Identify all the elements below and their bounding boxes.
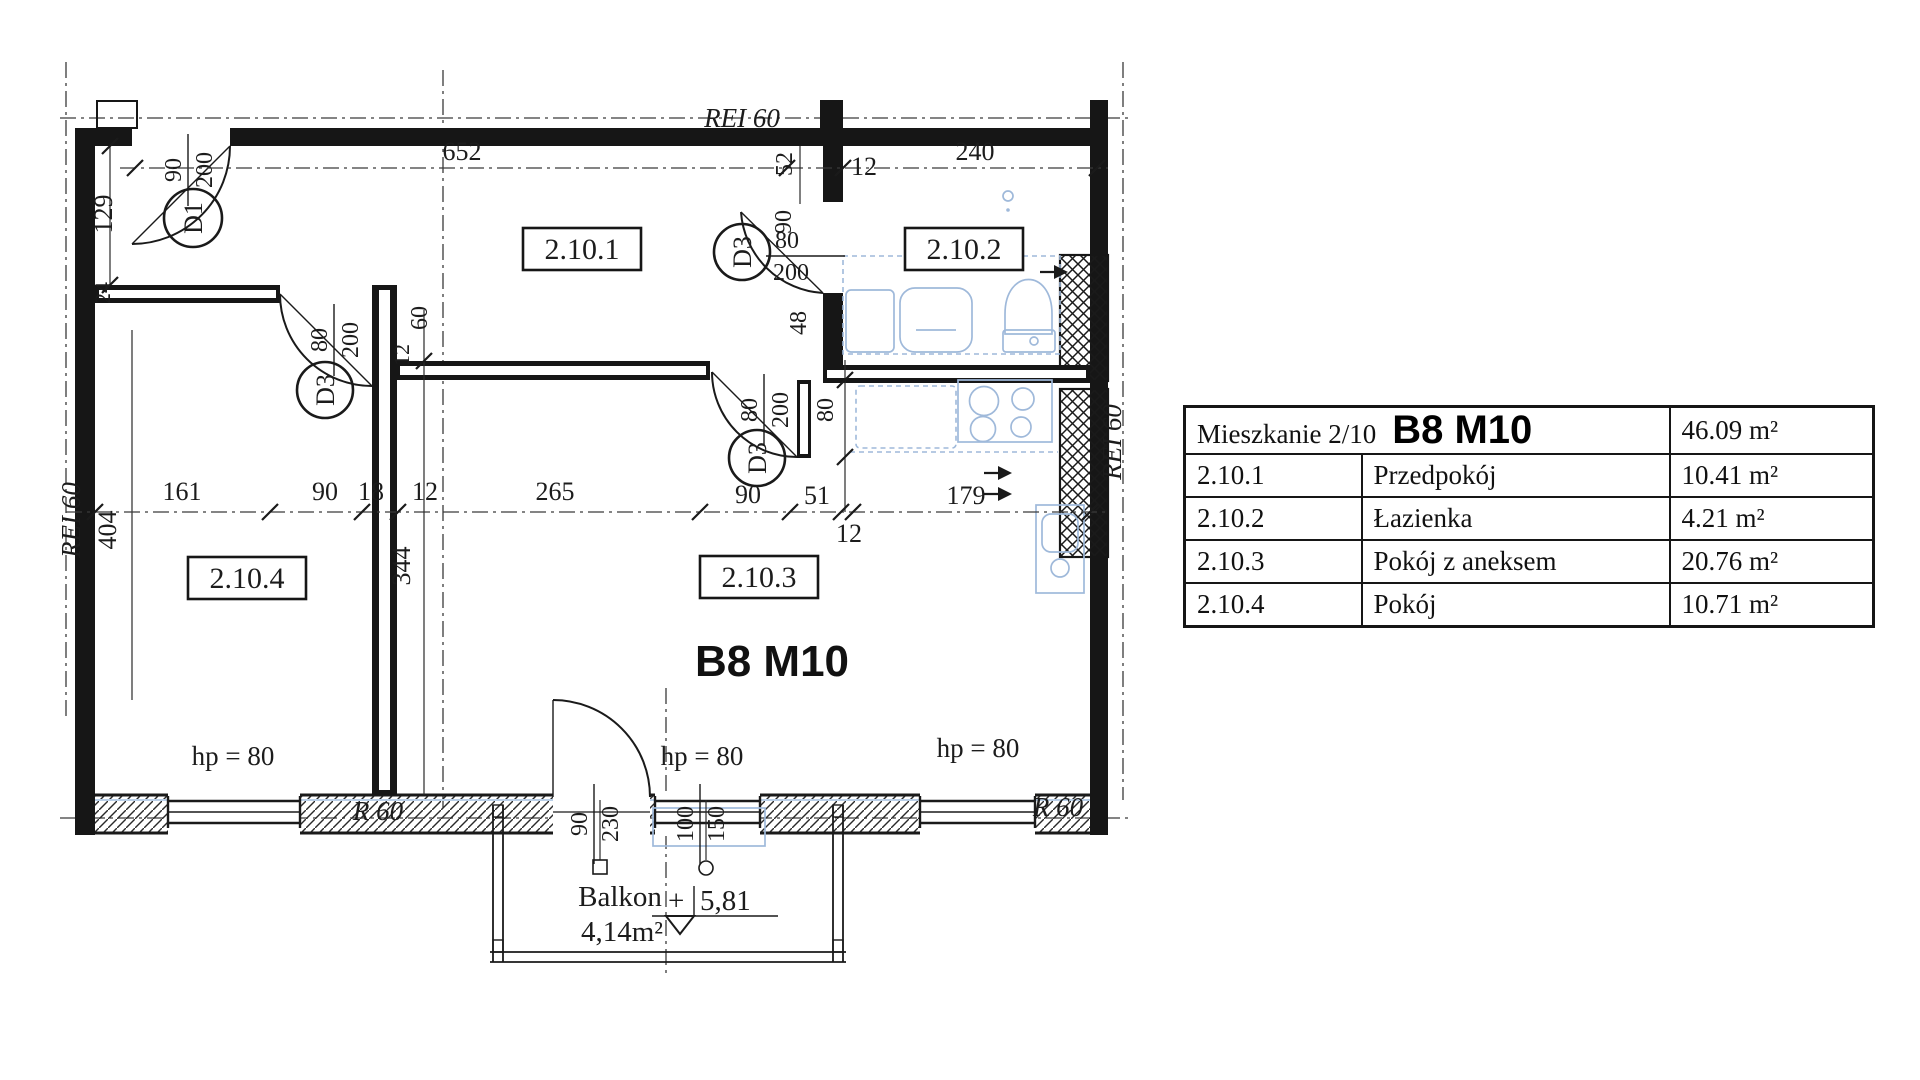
dim-179: 179 — [947, 481, 986, 510]
room-id-cell: 2.10.1 — [1185, 454, 1362, 497]
room-id-cell: 2.10.4 — [1185, 583, 1362, 627]
table-row: 2.10.2 Łazienka 4.21 m² — [1185, 497, 1874, 540]
svg-text:80: 80 — [775, 228, 799, 254]
dim-161: 161 — [163, 477, 202, 506]
dim-404: 404 — [93, 511, 122, 550]
balcony-area: 4,14m² — [581, 916, 663, 948]
fire-label-r60-left: R 60 — [352, 796, 404, 826]
dim-kitchen-80: 80 — [813, 398, 839, 422]
fire-label-rei60-left: REI 60 — [56, 482, 86, 559]
dim-52: 52 — [772, 152, 798, 176]
room-label-2-10-2: 2.10.2 — [927, 233, 1002, 266]
dim-51: 51 — [804, 481, 830, 510]
dim-18: 18 — [358, 477, 384, 506]
balcony-name: Balkon — [578, 881, 662, 913]
room-area-cell: 20.76 m² — [1670, 540, 1874, 583]
balcony-level-value: 5,81 — [700, 885, 751, 917]
dim-48: 48 — [786, 311, 812, 335]
apartment-code: B8 M10 — [1392, 408, 1532, 453]
room-label-2-10-1: 2.10.1 — [545, 233, 620, 266]
door-circle-d1: D1 — [179, 202, 208, 234]
table-row: 2.10.1 Przedpokój 10.41 m² — [1185, 454, 1874, 497]
dim-60: 60 — [407, 306, 433, 330]
room-label-2-10-3: 2.10.3 — [722, 561, 797, 594]
room-id-cell: 2.10.3 — [1185, 540, 1362, 583]
toilet — [1005, 280, 1052, 335]
svg-text:200: 200 — [768, 392, 794, 428]
exterior-walls — [75, 100, 1108, 835]
window3-sill-label: hp = 80 — [937, 733, 1020, 763]
dim-652: 652 — [443, 137, 482, 166]
door-circle-d3-b: D3 — [728, 236, 757, 268]
dim-129: 129 — [89, 195, 118, 234]
fire-label-r60-right: R 60 — [1032, 792, 1084, 822]
room-name-cell: Przedpokój — [1362, 454, 1670, 497]
axis-lines — [60, 62, 1130, 975]
dim-240: 240 — [956, 137, 995, 166]
room-label-2-10-4: 2.10.4 — [210, 562, 285, 595]
svg-text:150: 150 — [704, 806, 730, 842]
dim-12-top: 12 — [851, 152, 877, 181]
room-id-cell: 2.10.2 — [1185, 497, 1362, 540]
room-name-cell: Pokój z aneksem — [1362, 540, 1670, 583]
room-area-cell: 10.71 m² — [1670, 583, 1874, 627]
room-labels: 2.10.1 2.10.2 2.10.3 2.10.4 B8 M10 — [188, 228, 1023, 686]
floor-plan-page: D1 90 200 D3 80 200 D3 90 80 200 48 — [0, 0, 1920, 1080]
dim-344: 344 — [387, 547, 416, 586]
fire-label-rei60-top: REI 60 — [703, 103, 780, 133]
table-row: 2.10.4 Pokój 10.71 m² — [1185, 583, 1874, 627]
room-name-cell: Pokój — [1362, 583, 1670, 627]
washbasin — [900, 288, 972, 352]
dim-90b: 90 — [735, 480, 761, 509]
room-name-cell: Łazienka — [1362, 497, 1670, 540]
total-area-cell: 46.09 m² — [1670, 407, 1874, 455]
dim-24: 24 — [90, 282, 115, 304]
kitchen-door-size: 80 200 — [737, 374, 794, 446]
dim-90a: 90 — [312, 477, 338, 506]
area-table: Mieszkanie 2/10 B8 M10 46.09 m² 2.10.1 P… — [1183, 405, 1875, 628]
door-circle-d3-c: D3 — [743, 442, 772, 474]
table-header-row: Mieszkanie 2/10 B8 M10 46.09 m² — [1185, 407, 1874, 455]
table-header-cell: Mieszkanie 2/10 B8 M10 — [1185, 407, 1670, 455]
apartment-title: Mieszkanie 2/10 — [1197, 419, 1376, 450]
dim-12c: 12 — [389, 344, 414, 366]
washing-machine — [846, 290, 894, 352]
svg-text:90: 90 — [161, 158, 187, 182]
svg-text:90: 90 — [567, 812, 593, 836]
svg-text:200: 200 — [338, 322, 364, 358]
svg-text:100: 100 — [673, 806, 699, 842]
stove — [958, 380, 1052, 442]
window2-sill-label: hp = 80 — [661, 741, 744, 771]
room-area-cell: 4.21 m² — [1670, 497, 1874, 540]
apartment-code-plan: B8 M10 — [695, 637, 849, 686]
balcony-level-plus: + — [668, 885, 684, 917]
svg-text:80: 80 — [307, 328, 333, 352]
dim-12a: 12 — [412, 477, 438, 506]
svg-text:200: 200 — [192, 152, 218, 188]
room4-door-d3: D3 80 200 — [280, 294, 372, 418]
floor-drain — [1003, 191, 1013, 201]
balcony-door-swing — [553, 700, 650, 797]
window-3 — [920, 792, 1035, 836]
svg-text:80: 80 — [737, 398, 763, 422]
dim-265: 265 — [536, 477, 575, 506]
middle-dimension-row: 161 90 18 12 265 90 51 179 12 — [66, 477, 1108, 548]
dim-12b: 12 — [836, 519, 862, 548]
svg-text:200: 200 — [773, 260, 809, 286]
window1-sill-label: hp = 80 — [192, 741, 275, 771]
bathroom-door-size: 80 200 — [766, 228, 845, 286]
room-area-cell: 10.41 m² — [1670, 454, 1874, 497]
bathroom-fixtures — [843, 191, 1060, 354]
entrance-door-d1: D1 90 200 — [132, 134, 230, 247]
fire-label-rei60-right: REI 60 — [1097, 404, 1127, 481]
svg-text:230: 230 — [598, 806, 624, 842]
table-row: 2.10.3 Pokój z aneksem 20.76 m² — [1185, 540, 1874, 583]
level-marker-triangle — [666, 916, 694, 934]
window-1 — [168, 792, 300, 836]
kitchen-cabinet — [856, 386, 956, 448]
door-circle-d3-a: D3 — [311, 374, 340, 406]
